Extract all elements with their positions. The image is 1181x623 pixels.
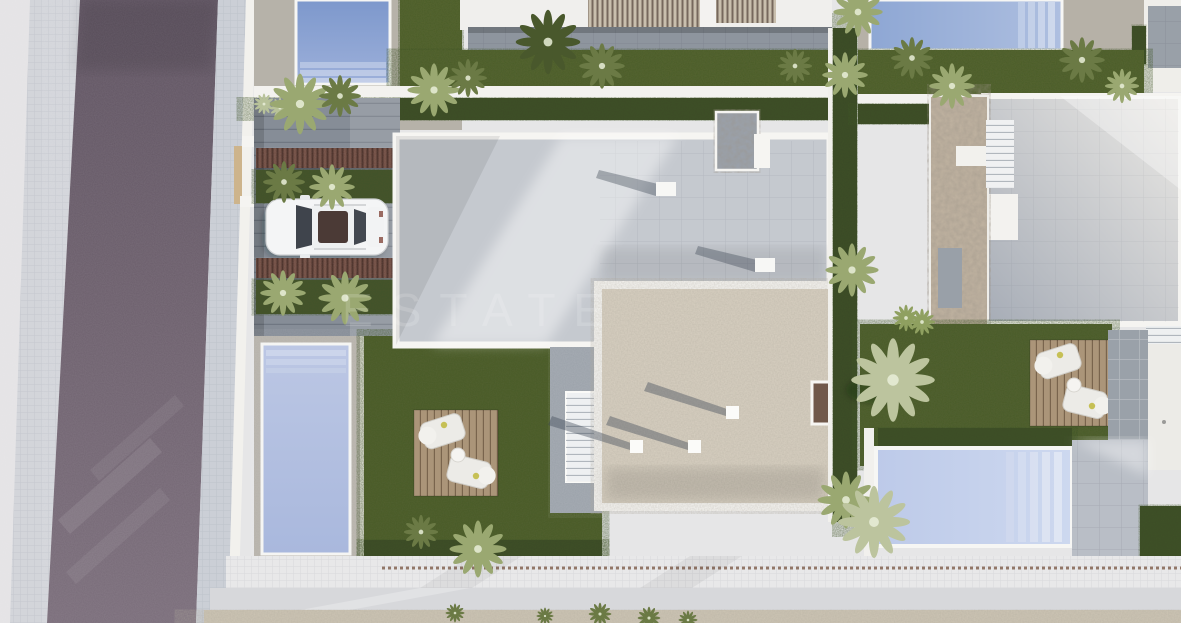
car-mirror-top xyxy=(300,195,310,200)
corner-hedge-bottom xyxy=(1140,506,1181,556)
render-canvas: ESTATE xyxy=(0,0,1181,623)
stone-wall-court xyxy=(938,248,962,308)
car-taillight-right xyxy=(379,237,383,243)
stone-stairs-treads xyxy=(986,120,1014,188)
right-white-structure xyxy=(1148,344,1181,470)
roof-entry-block xyxy=(716,112,758,170)
east-wall xyxy=(828,28,833,522)
gate-pillar-bottom xyxy=(240,196,254,207)
white-suv xyxy=(262,195,388,259)
roof-vent-2 xyxy=(755,258,775,272)
garden-pool-central-steps xyxy=(266,350,346,373)
roof-entry-notch xyxy=(754,134,770,168)
stone-wall-notch xyxy=(956,146,988,166)
car-taillight-left xyxy=(379,211,383,217)
car-windshield xyxy=(296,205,312,249)
upper-pergolas xyxy=(588,0,776,27)
car-sunroof xyxy=(318,211,348,243)
gate-pillar-top xyxy=(242,136,256,147)
right-small-steps-treads xyxy=(1146,326,1181,346)
right-roof-inset xyxy=(986,194,1018,240)
gravel-roof-shade xyxy=(606,468,824,500)
corner-patio-tiles xyxy=(1148,6,1181,68)
sun-deck-right xyxy=(1030,340,1115,426)
watermark-text: ESTATE xyxy=(342,284,622,336)
sun-deck xyxy=(414,410,499,496)
aerial-render: ESTATE xyxy=(0,0,1181,623)
garden-pool-central xyxy=(262,344,350,554)
driveway-gate-post xyxy=(234,146,242,204)
car-rear-window xyxy=(354,209,366,245)
pool-hedge xyxy=(878,428,1072,446)
roof-vent xyxy=(656,182,676,196)
structure-handle xyxy=(1162,420,1166,424)
